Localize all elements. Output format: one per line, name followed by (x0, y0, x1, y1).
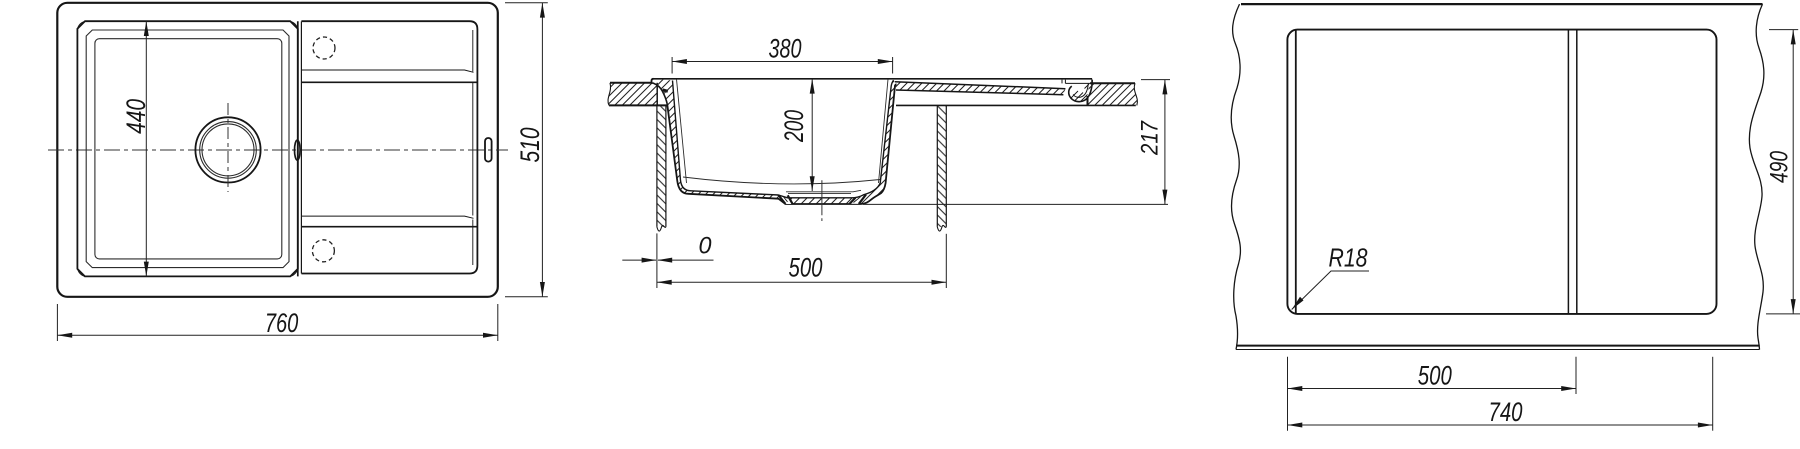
svg-text:440: 440 (121, 99, 151, 134)
svg-text:200: 200 (779, 110, 809, 143)
svg-text:0: 0 (699, 233, 713, 260)
svg-text:490: 490 (1766, 151, 1794, 183)
svg-text:R18: R18 (1329, 243, 1368, 273)
svg-text:380: 380 (769, 34, 802, 64)
svg-text:500: 500 (789, 253, 823, 283)
svg-text:510: 510 (515, 128, 545, 163)
svg-text:500: 500 (1418, 361, 1452, 391)
svg-text:760: 760 (265, 308, 299, 338)
svg-text:740: 740 (1489, 397, 1523, 427)
svg-text:217: 217 (1137, 120, 1164, 156)
